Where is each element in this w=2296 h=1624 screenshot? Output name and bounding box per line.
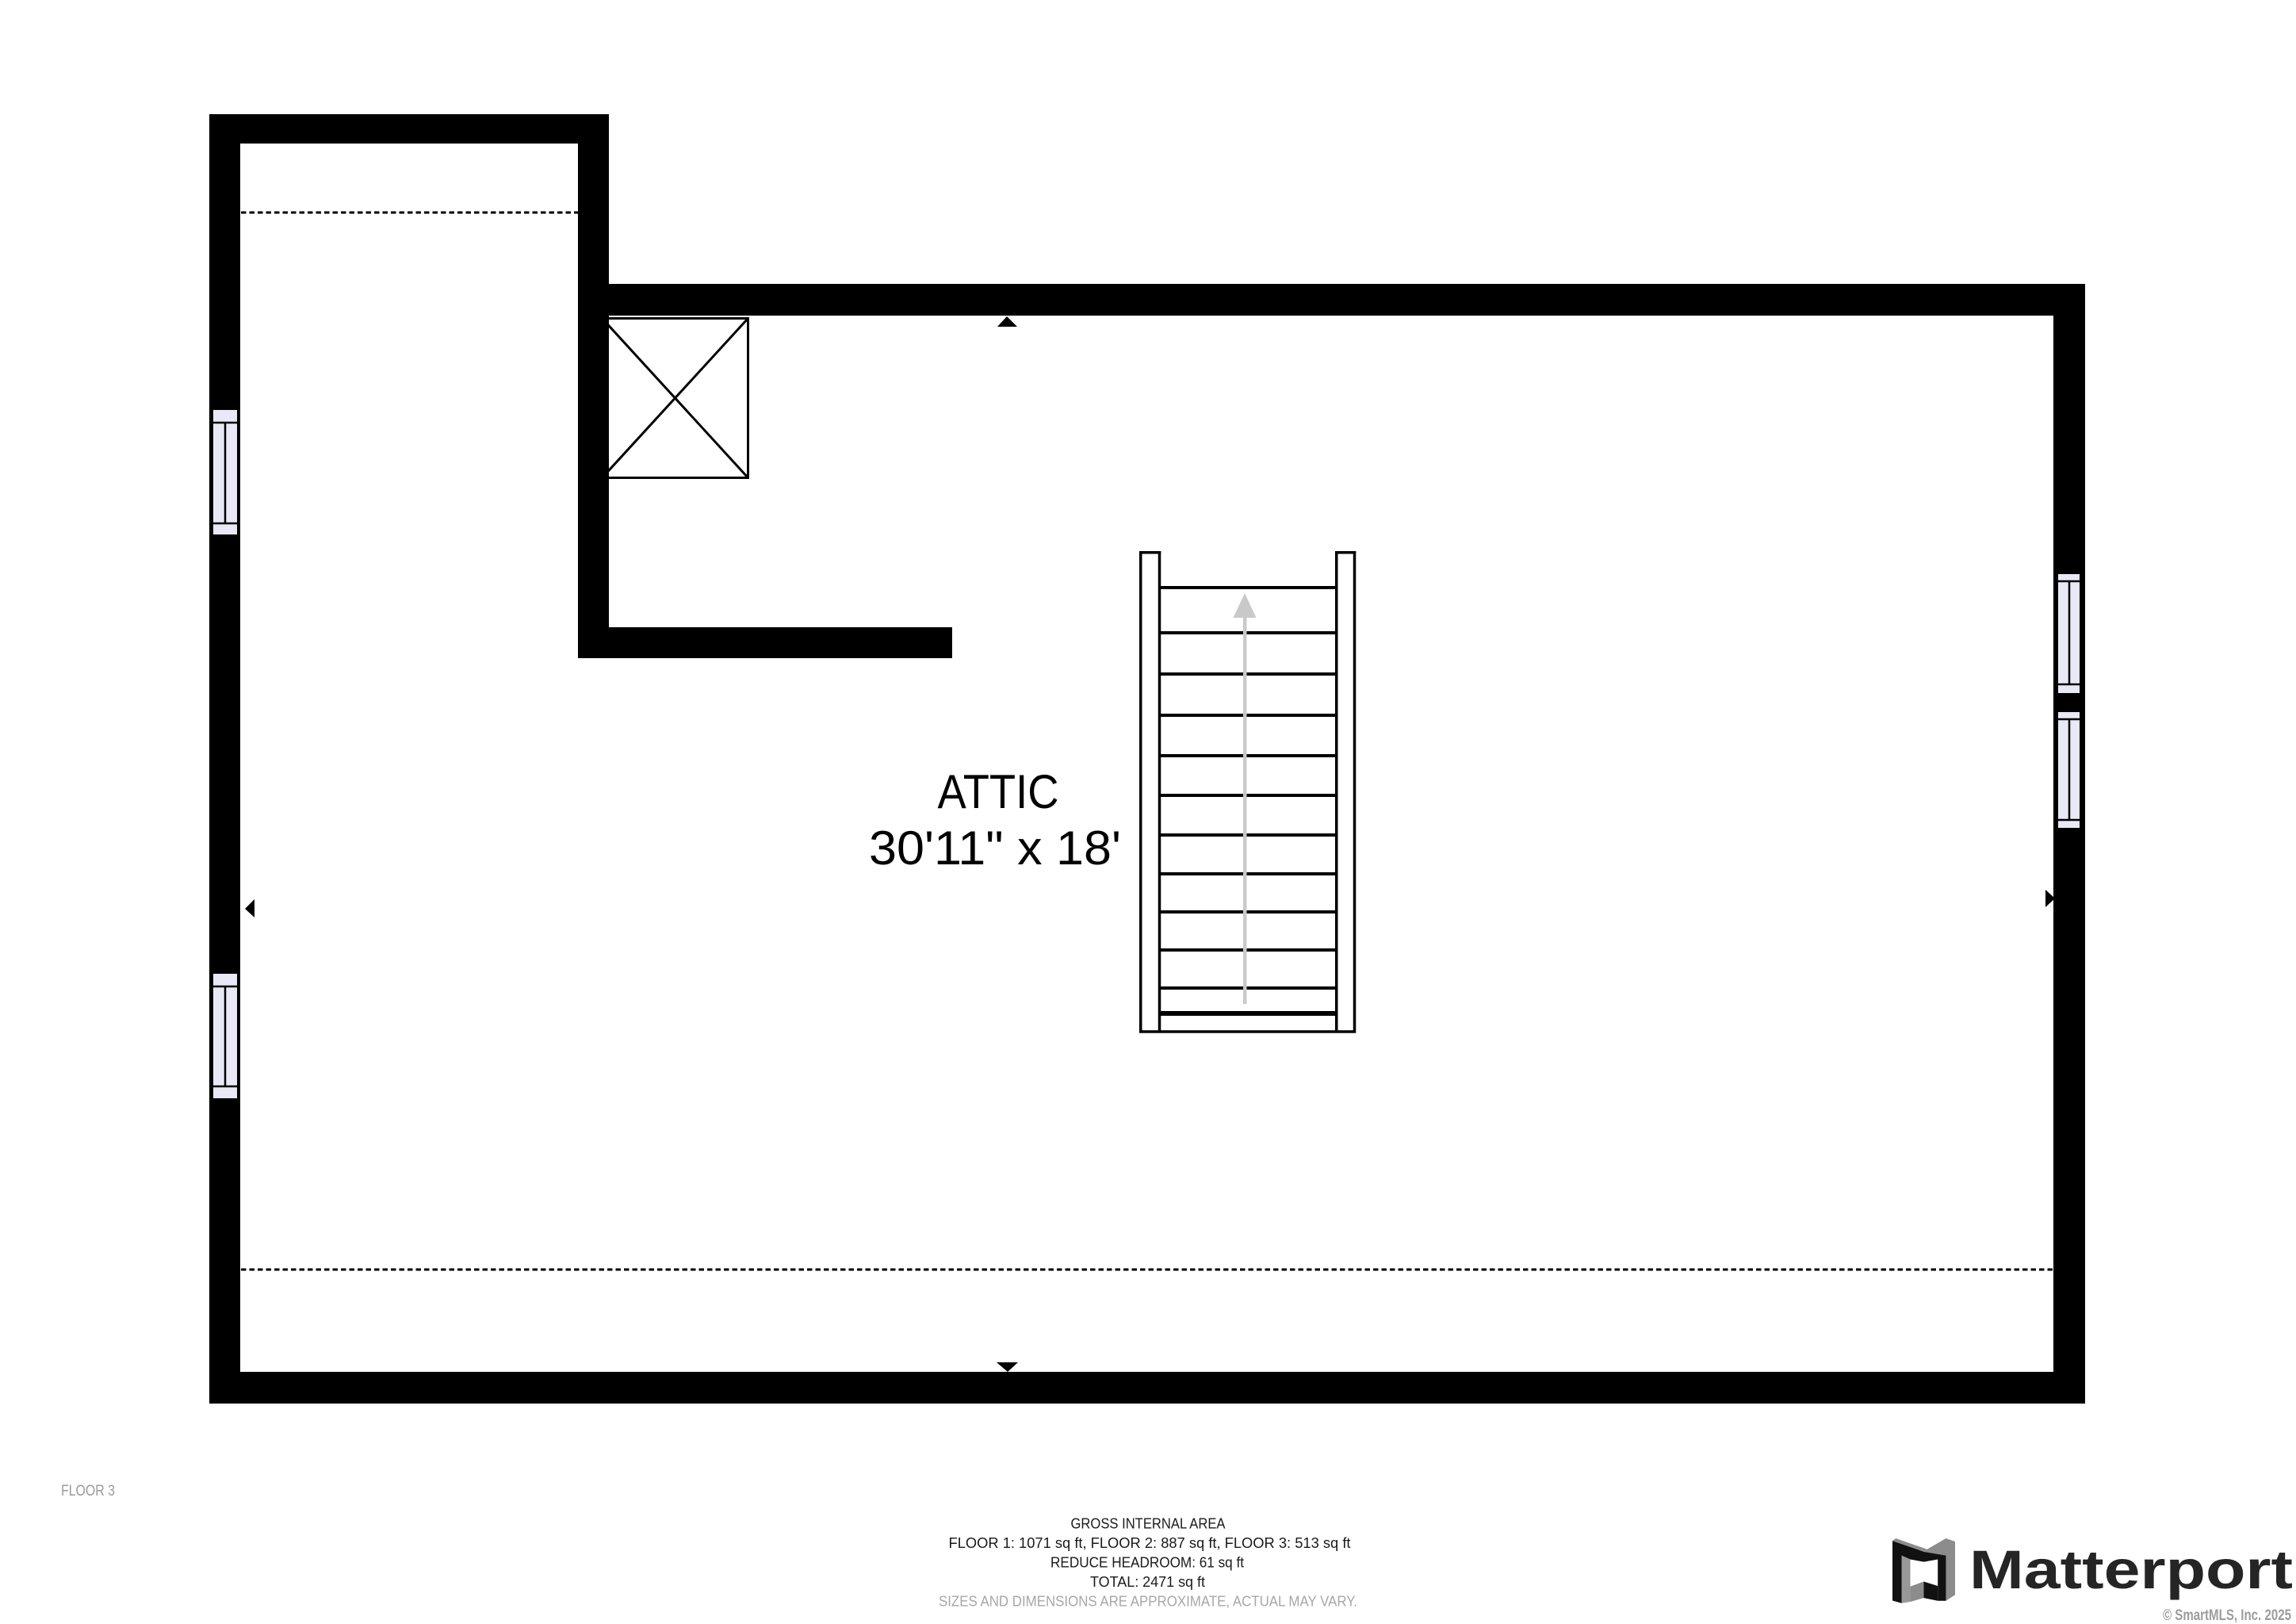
svg-text:30'11" x 18': 30'11" x 18': [869, 822, 1121, 875]
svg-text:ATTIC: ATTIC: [938, 765, 1059, 818]
svg-text:FLOOR 1: 1071 sq ft, FLOOR 2:: FLOOR 1: 1071 sq ft, FLOOR 2: 887 sq ft,…: [949, 1534, 1351, 1551]
svg-text:GROSS INTERNAL AREA: GROSS INTERNAL AREA: [1071, 1515, 1226, 1532]
svg-text:TOTAL: 2471 sq ft: TOTAL: 2471 sq ft: [1090, 1573, 1205, 1590]
svg-text:Matterport: Matterport: [1969, 1539, 2293, 1600]
svg-text:REDUCE HEADROOM: 61 sq ft: REDUCE HEADROOM: 61 sq ft: [1050, 1554, 1244, 1571]
svg-text:SIZES AND DIMENSIONS ARE APPRO: SIZES AND DIMENSIONS ARE APPROXIMATE, AC…: [939, 1593, 1357, 1610]
svg-text:FLOOR 3: FLOOR 3: [61, 1483, 115, 1500]
svg-text:© SmartMLS, Inc. 2025: © SmartMLS, Inc. 2025: [2163, 1607, 2291, 1624]
